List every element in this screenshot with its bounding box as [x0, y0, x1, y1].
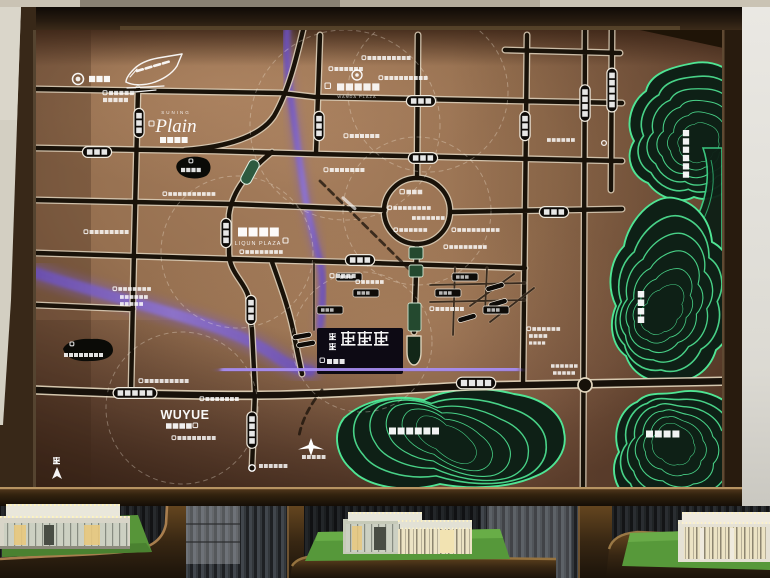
svg-text:Plain: Plain	[154, 116, 196, 137]
svg-text:SUNING: SUNING	[161, 110, 191, 115]
svg-text:WANDA PLAZA: WANDA PLAZA	[337, 94, 376, 99]
svg-text:WUYUE: WUYUE	[160, 408, 209, 422]
svg-text:LIQUN PLAZA: LIQUN PLAZA	[235, 241, 282, 247]
